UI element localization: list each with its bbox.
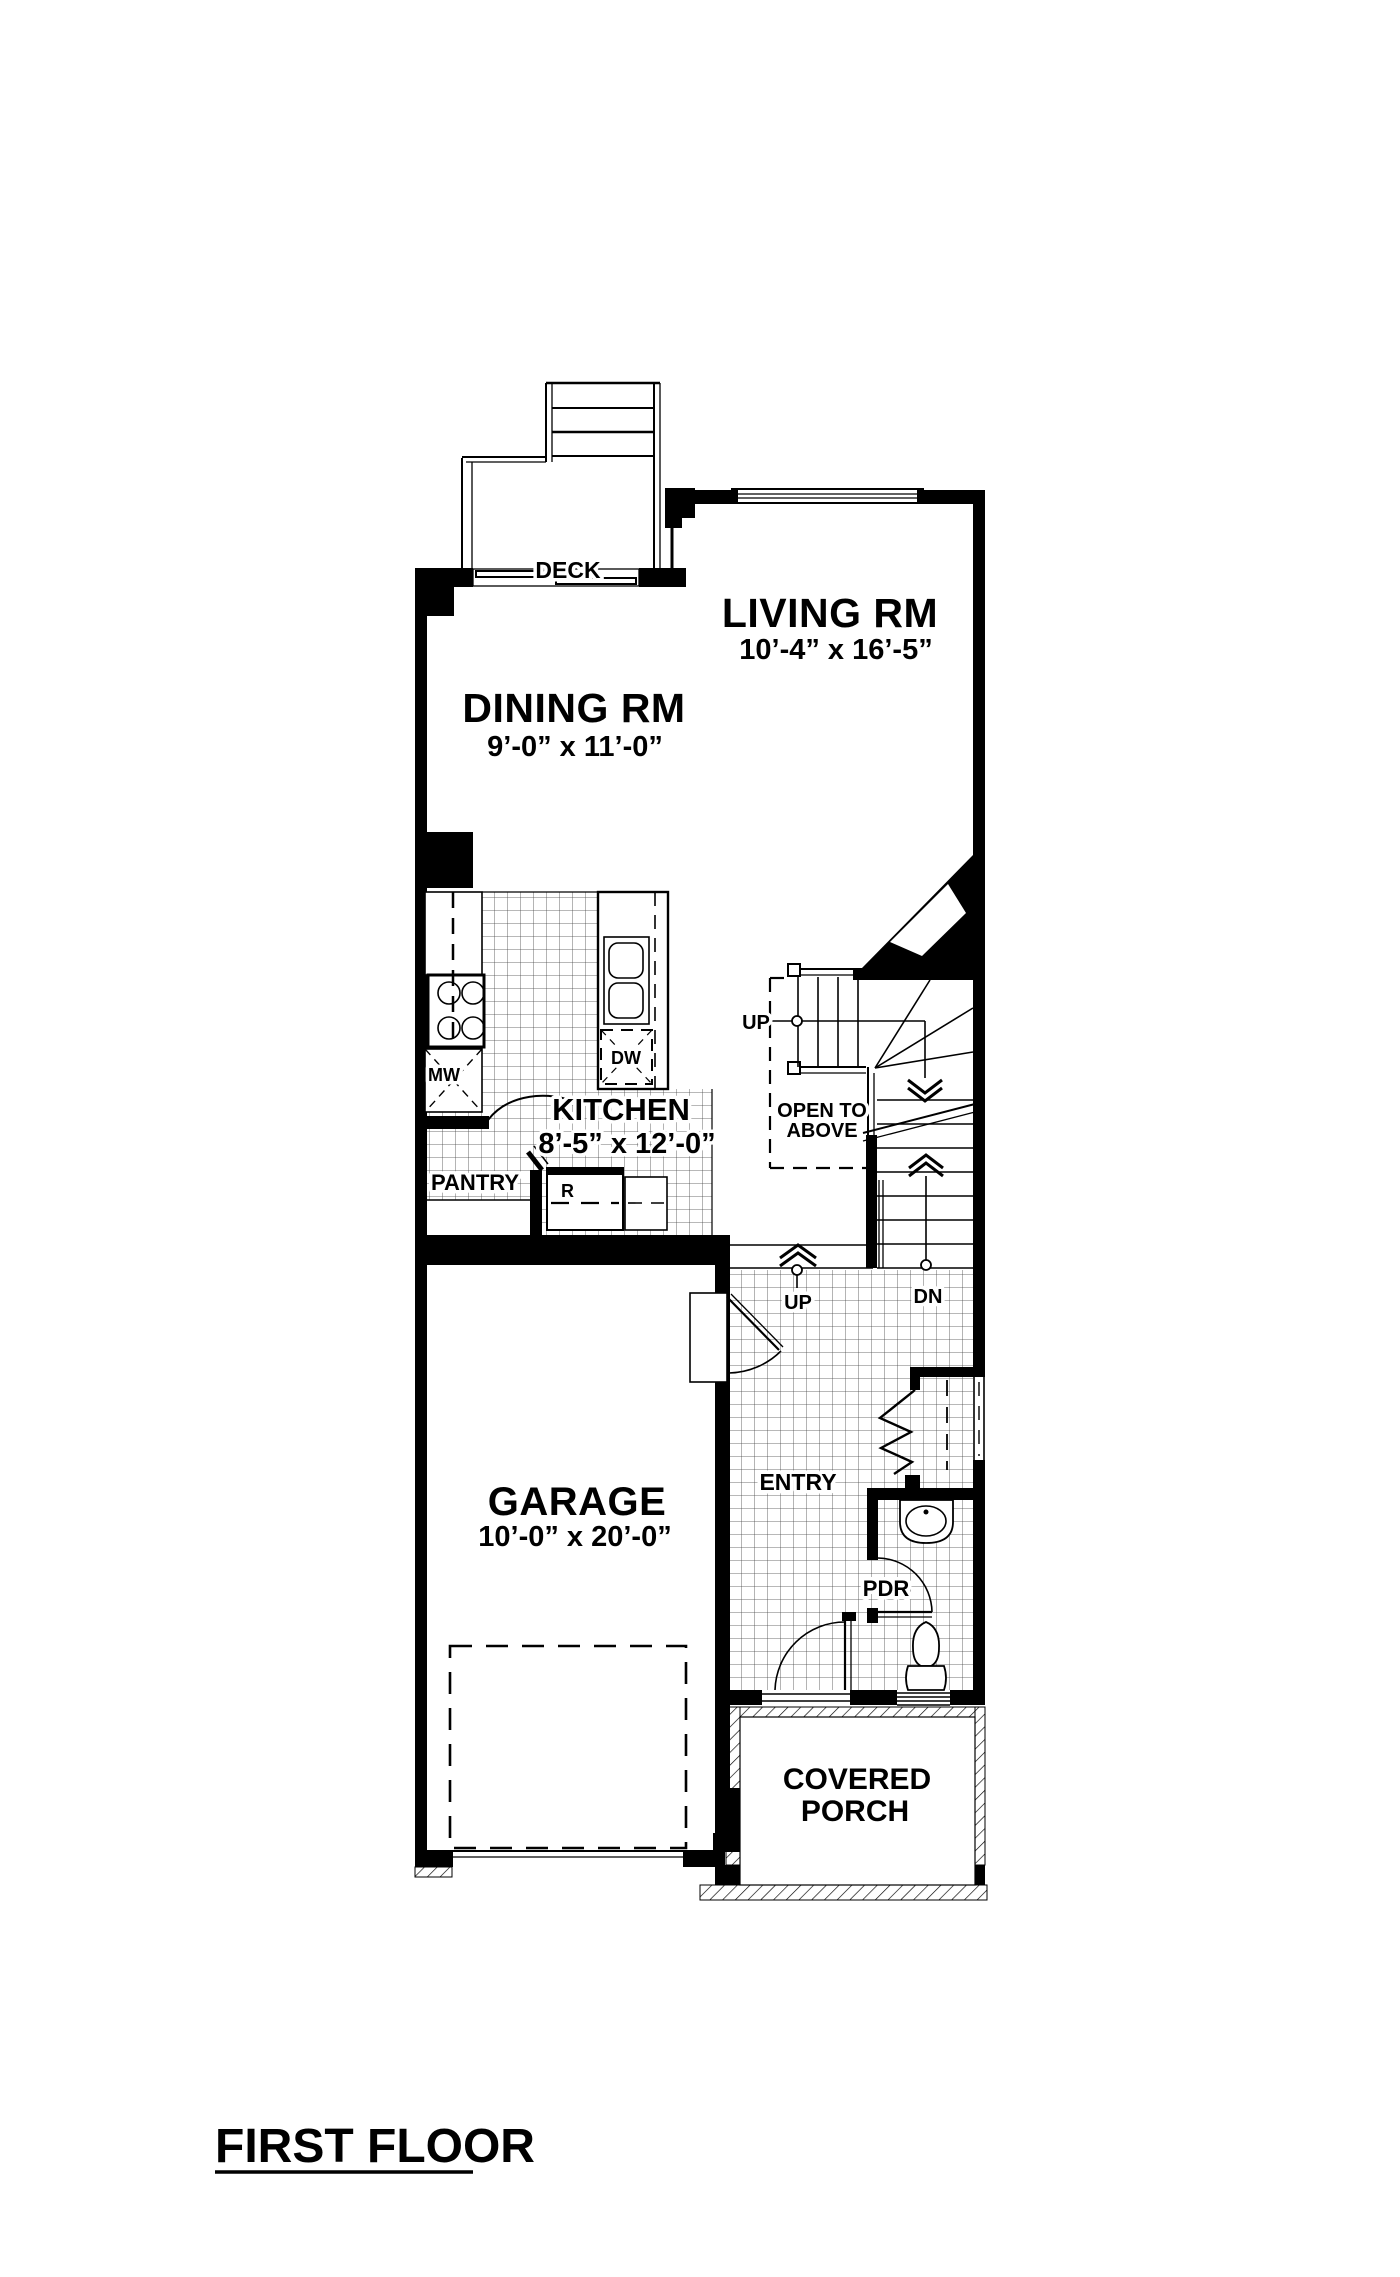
kitchen-pantry-wall-stub: [415, 1116, 489, 1129]
living-room-window: [732, 489, 923, 503]
refrigerator-label: R: [561, 1181, 574, 1201]
room-label-porch-line2: PORCH: [801, 1795, 909, 1828]
room-label-porch-line1: COVERED: [783, 1763, 931, 1796]
closet-north-wall: [910, 1367, 982, 1377]
room-label-entry: ENTRY: [759, 1469, 836, 1495]
room-label-living: LIVING RM: [722, 590, 938, 636]
garage-south-wall-right: [683, 1850, 725, 1867]
floor-plan-page: DECK LIVING RM 10’-4” x 16’-5” DINING RM…: [0, 0, 1400, 2277]
tiled-floors: [427, 892, 973, 1690]
stairs-down-label: DN: [914, 1286, 943, 1308]
pdr-west-wall-upper: [867, 1500, 878, 1560]
dishwasher-label: DW: [611, 1048, 641, 1068]
living-corner-step: [665, 503, 682, 528]
closet-door-stub: [905, 1475, 920, 1488]
pdr-north-wall: [867, 1488, 982, 1500]
garage-door: [450, 1646, 686, 1857]
room-dims-living: 10’-4” x 16’-5”: [739, 634, 932, 666]
pdr-toilet-bowl: [913, 1622, 939, 1666]
east-exterior-wall-upper: [973, 503, 985, 1377]
deck-wall-right-segment: [639, 568, 686, 587]
room-label-kitchen: KITCHEN: [552, 1092, 690, 1127]
garage-corner-footing: [415, 1867, 452, 1877]
stair-landing-wall: [853, 968, 985, 980]
porch-bottom-band: [700, 1885, 987, 1900]
room-dims-dining: 9’-0” x 11’-0”: [487, 731, 663, 763]
room-label-deck: DECK: [535, 557, 601, 583]
open-to-above-line2: ABOVE: [786, 1120, 857, 1142]
room-label-dining: DINING RM: [462, 685, 685, 731]
room-dims-garage: 10’-0” x 20’-0”: [478, 1521, 671, 1553]
porch-right-band: [975, 1707, 985, 1865]
garage-door-panel-dashed: [450, 1646, 686, 1848]
deck-outline: [462, 383, 660, 570]
pdr-toilet-tank: [906, 1666, 946, 1690]
south-wall-entry-right: [850, 1690, 897, 1705]
room-label-pantry: PANTRY: [431, 1170, 519, 1195]
south-wall-entry-left: [715, 1690, 762, 1705]
porch-top-band: [740, 1707, 975, 1717]
porch-left-band: [726, 1707, 740, 1865]
north-wall-left-of-window: [695, 490, 732, 504]
floor-plan-drawing: DECK LIVING RM 10’-4” x 16’-5” DINING RM…: [0, 0, 1400, 2277]
north-wall-right-of-window: [923, 490, 985, 504]
microwave-label: MW: [428, 1065, 460, 1085]
west-wall-step: [427, 587, 454, 616]
pantry-fridge-wall: [530, 1170, 542, 1235]
refrigerator-box: [547, 1168, 623, 1230]
open-to-above-line1: OPEN TO: [777, 1100, 867, 1122]
garage-south-wall-left: [415, 1850, 453, 1867]
room-label-pdr: PDR: [863, 1576, 910, 1601]
front-door-latch-stub: [842, 1612, 856, 1621]
sheet-title: FIRST FLOOR: [215, 2120, 535, 2173]
pdr-door-stub: [867, 1608, 878, 1623]
deck-wall-left-segment: [416, 568, 473, 587]
down-arrow-origin: [921, 1260, 931, 1270]
garage-north-wall: [415, 1235, 730, 1265]
dining-kitchen-wall-block: [427, 832, 473, 888]
stairs-up-label: UP: [742, 1012, 770, 1034]
garage-door-recess: [690, 1293, 727, 1382]
porch-left-pier-mid: [726, 1788, 740, 1835]
sheet-title-text: FIRST FLOOR: [215, 2120, 535, 2173]
west-exterior-wall: [415, 568, 427, 1867]
up-arrow-origin: [792, 1016, 802, 1026]
south-wall-pdr: [950, 1690, 985, 1705]
room-label-garage: GARAGE: [488, 1480, 667, 1524]
entry-up-label: UP: [784, 1292, 812, 1314]
deck-stairs: [546, 383, 660, 570]
stair-rail-wall: [866, 1135, 877, 1268]
closet-wall-stub: [910, 1377, 920, 1390]
entry-step-arrow-origin: [792, 1265, 802, 1275]
room-dims-kitchen: 8’-5” x 12’-0”: [538, 1128, 715, 1160]
